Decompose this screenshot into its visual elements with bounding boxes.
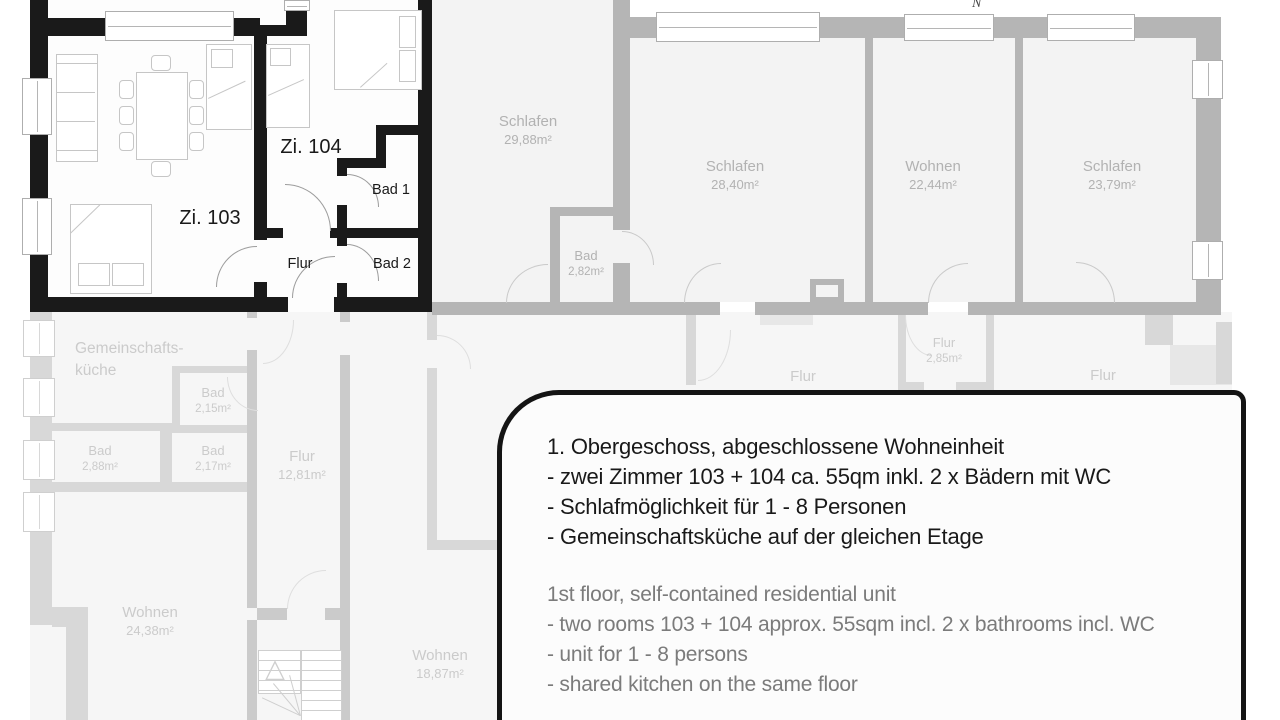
callout-line: - two rooms 103 + 104 approx. 55sqm incl… [547, 610, 1225, 640]
window [23, 440, 55, 480]
room-label: Flur 2,85m² [926, 335, 962, 367]
stairs-up-arrow: △ [265, 655, 285, 681]
shaft-outline [810, 279, 844, 303]
window [656, 12, 820, 42]
room-area: 2,17m² [195, 459, 231, 475]
room-area: 12,81m² [278, 466, 326, 484]
wall [956, 382, 994, 390]
room-name: Schlafen [1083, 158, 1141, 176]
wall [160, 430, 172, 490]
room-area: 29,88m² [499, 131, 557, 149]
pillow [270, 48, 291, 66]
room-label: Flur [790, 368, 816, 386]
room-label-bad1: Bad 1 [372, 182, 410, 198]
room-name: Wohnen [122, 604, 178, 622]
sofa [56, 63, 98, 153]
room-name: Flur [278, 448, 326, 466]
room-label: Bad 2,88m² [82, 443, 118, 475]
chair [151, 161, 171, 177]
chair [189, 106, 204, 125]
window [23, 320, 55, 357]
room-area: 22,44m² [905, 176, 961, 194]
wall [30, 530, 52, 625]
window [105, 11, 234, 41]
room-label: Flur 12,81m² [278, 448, 326, 484]
wall [613, 263, 630, 302]
unit-wall [337, 205, 347, 238]
unit-wall [337, 283, 347, 297]
callout-line: - unit for 1 - 8 persons [547, 640, 1225, 670]
wall [257, 608, 287, 620]
room-label: Bad 2,17m² [195, 443, 231, 475]
window [904, 14, 994, 41]
north-indicator: N [972, 0, 981, 12]
chair [189, 80, 204, 99]
stairs [301, 650, 342, 720]
unit-wall [267, 228, 283, 238]
wall [686, 315, 696, 385]
wall [755, 302, 928, 315]
room-label-zi104: Zi. 104 [280, 136, 341, 158]
room-label: Schlafen 23,79m² [1083, 158, 1141, 194]
window [1192, 60, 1223, 99]
room-name: Bad [195, 443, 231, 459]
room-area: 23,79m² [1083, 176, 1141, 194]
wall [613, 0, 630, 230]
pillow [399, 16, 416, 48]
wall [1216, 322, 1232, 384]
room-name: Flur [926, 335, 962, 351]
room-label: Schlafen 28,40m² [706, 158, 764, 194]
room-label: Bad 2,82m² [568, 248, 604, 280]
unit-wall [337, 238, 347, 246]
info-callout-box: 1. Obergeschoss, abgeschlossene Wohneinh… [497, 390, 1246, 720]
room-area: 2,85m² [926, 351, 962, 367]
chair [189, 132, 204, 151]
unit-wall [337, 158, 386, 168]
wall [432, 302, 720, 315]
room-label-kitchen: Gemeinschafts- küche [75, 338, 184, 382]
wall [30, 312, 52, 320]
room-label: Wohnen 22,44m² [905, 158, 961, 194]
wall [52, 607, 88, 627]
wall [247, 620, 257, 720]
wall [898, 382, 924, 390]
chair [119, 80, 134, 99]
wall [1015, 38, 1023, 302]
room-name: Wohnen [412, 647, 468, 665]
window [284, 0, 310, 11]
window [1192, 241, 1223, 280]
callout-line: 1. Obergeschoss, abgeschlossene Wohneinh… [547, 432, 1225, 462]
wall [427, 540, 497, 550]
room-area: 28,40m² [706, 176, 764, 194]
callout-line: - Gemeinschaftsküche auf der gleichen Et… [547, 522, 1225, 552]
wall [48, 482, 257, 492]
room-name: Bad [82, 443, 118, 459]
room-name: Wohnen [905, 158, 961, 176]
room-area: 18,87m² [412, 665, 468, 683]
wall [427, 312, 437, 340]
callout-line: - shared kitchen on the same floor [547, 670, 1225, 700]
wall [427, 368, 437, 540]
callout-line: 1st floor, self-contained residential un… [547, 580, 1225, 610]
wall [66, 627, 88, 720]
pillow [211, 49, 233, 68]
callout-german-text: 1. Obergeschoss, abgeschlossene Wohneinh… [547, 432, 1225, 552]
wall [550, 207, 622, 216]
room-label-zi103: Zi. 103 [179, 207, 240, 229]
room-name: Schlafen [706, 158, 764, 176]
wall [340, 312, 350, 322]
window [23, 492, 55, 532]
window [1047, 14, 1135, 41]
room-area: 2,15m² [195, 401, 231, 417]
wall [968, 302, 1221, 315]
room-area: 2,82m² [568, 264, 604, 280]
callout-english-text: 1st floor, self-contained residential un… [547, 580, 1225, 700]
room-area: 24,38m² [122, 622, 178, 640]
wall [247, 312, 257, 318]
room-label: Schlafen 29,88m² [499, 113, 557, 149]
sofa-cushion-line [57, 92, 95, 93]
unit-wall [337, 168, 347, 176]
wall [172, 366, 257, 373]
wall [48, 423, 173, 431]
callout-line: - zwei Zimmer 103 + 104 ca. 55qm inkl. 2… [547, 462, 1225, 492]
window [22, 78, 52, 135]
chair [151, 55, 171, 71]
wall [865, 38, 873, 302]
unit-wall [30, 133, 48, 198]
unit-wall [30, 0, 48, 78]
room-name: Bad [195, 385, 231, 401]
window [22, 198, 52, 255]
wall [325, 608, 350, 620]
chair [119, 132, 134, 151]
wall [1145, 312, 1173, 345]
unit-wall [334, 297, 432, 312]
room-name: Schlafen [499, 113, 557, 131]
pillow [78, 263, 110, 286]
callout-line: - Schlafmöglichkeit für 1 - 8 Personen [547, 492, 1225, 522]
unit-wall [30, 297, 288, 312]
room-name: küche [75, 360, 184, 382]
floorplan-canvas: △ [0, 0, 1280, 720]
sofa-cushion-line [57, 121, 95, 122]
room-label: Wohnen 18,87m² [412, 647, 468, 683]
dining-table [136, 72, 188, 160]
wall [898, 315, 906, 387]
wall [172, 425, 257, 433]
unit-wall [48, 18, 107, 36]
chair [119, 106, 134, 125]
sofa [56, 150, 98, 162]
room-name: Gemeinschafts- [75, 338, 184, 360]
room-label: Wohnen 24,38m² [122, 604, 178, 640]
room-label: Bad 2,15m² [195, 385, 231, 417]
wall [1196, 97, 1221, 243]
room-label-flur: Flur [288, 256, 313, 272]
wall [550, 207, 560, 302]
room-label-bad2: Bad 2 [373, 256, 411, 272]
room-name: Bad [568, 248, 604, 264]
window [23, 378, 55, 417]
wall [30, 355, 52, 378]
pillow [399, 50, 416, 82]
wall [340, 355, 350, 608]
wall [1196, 278, 1221, 302]
pillow [112, 263, 144, 286]
room-label: Flur [1090, 367, 1116, 385]
room-area: 2,88m² [82, 459, 118, 475]
wall [986, 315, 994, 387]
wall [1196, 17, 1221, 62]
